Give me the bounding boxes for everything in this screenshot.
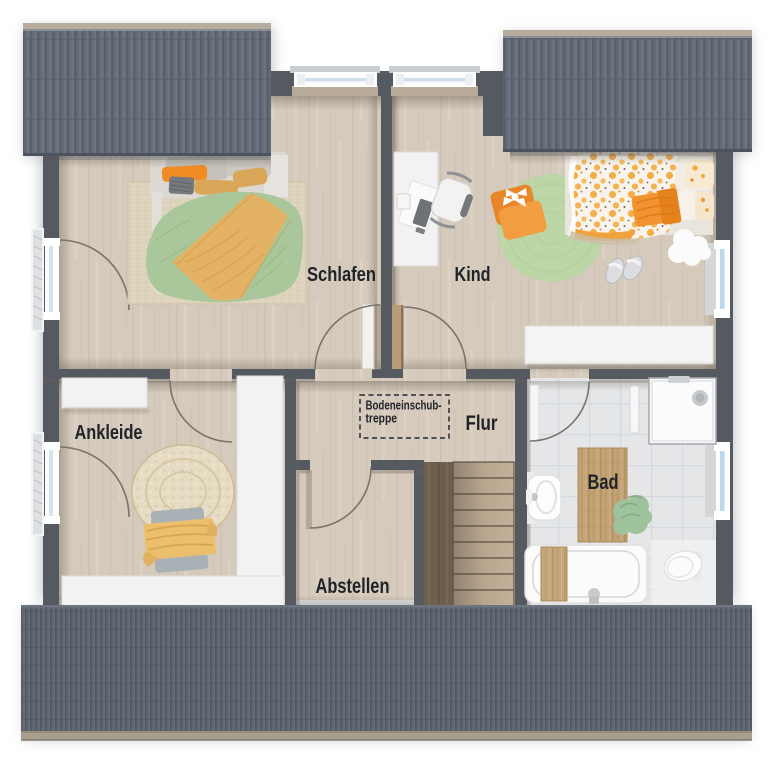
svg-text:Bad: Bad [588, 471, 619, 494]
svg-text:Schlafen: Schlafen [307, 263, 376, 286]
svg-text:Flur: Flur [466, 411, 498, 435]
svg-text:Ankleide: Ankleide [75, 422, 143, 444]
svg-text:treppe: treppe [366, 411, 398, 426]
svg-text:Kind: Kind [455, 264, 491, 286]
svg-text:Abstellen: Abstellen [316, 574, 390, 598]
